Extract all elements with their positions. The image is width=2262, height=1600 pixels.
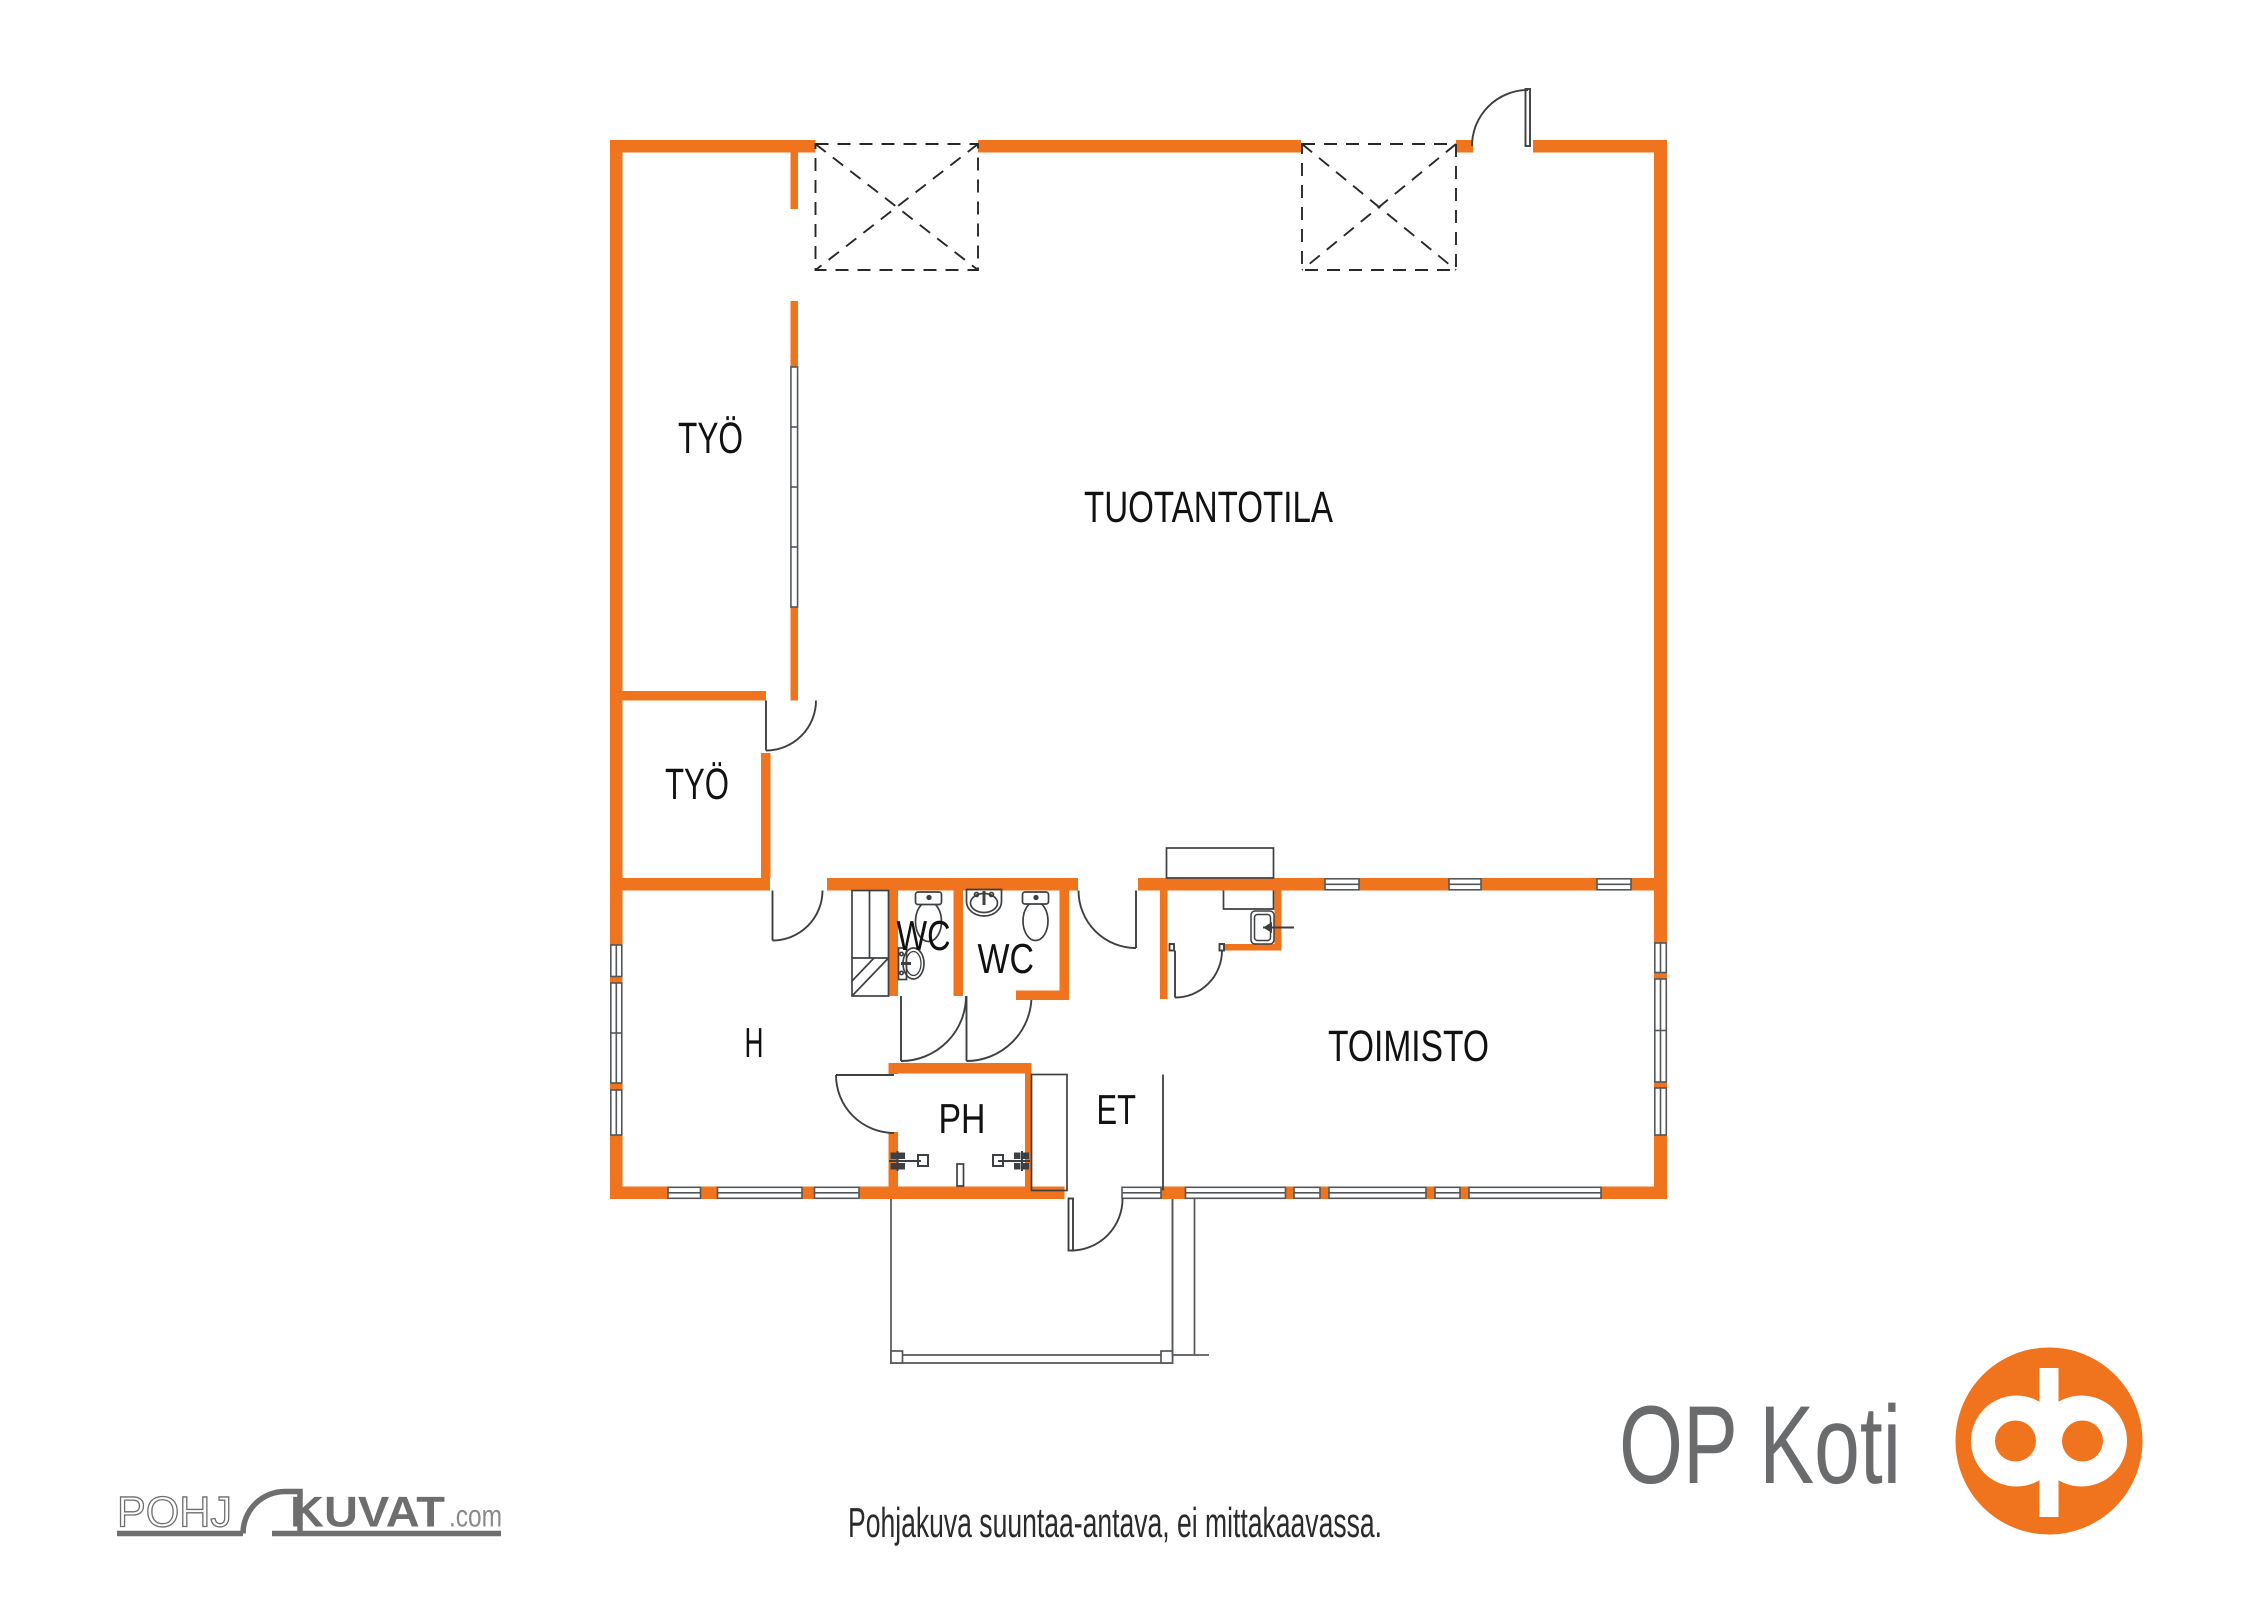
svg-text:.com: .com [449, 1499, 502, 1534]
svg-text:TYÖ: TYÖ [665, 760, 729, 809]
svg-text:POHJ: POHJ [117, 1489, 232, 1537]
svg-text:ET: ET [1097, 1086, 1137, 1133]
svg-text:WC: WC [978, 935, 1035, 982]
svg-text:WC: WC [897, 912, 951, 959]
svg-text:TUOTANTOTILA: TUOTANTOTILA [1084, 483, 1333, 532]
svg-text:Pohjakuva suuntaa-antava, ei m: Pohjakuva suuntaa-antava, ei mittakaavas… [848, 1499, 1382, 1546]
svg-text:KUVAT: KUVAT [290, 1489, 445, 1537]
svg-text:OP Koti: OP Koti [1619, 1383, 1901, 1507]
svg-text:TOIMISTO: TOIMISTO [1328, 1022, 1489, 1071]
svg-text:PH: PH [939, 1095, 986, 1142]
svg-text:TYÖ: TYÖ [678, 414, 743, 463]
svg-text:H: H [745, 1019, 764, 1066]
